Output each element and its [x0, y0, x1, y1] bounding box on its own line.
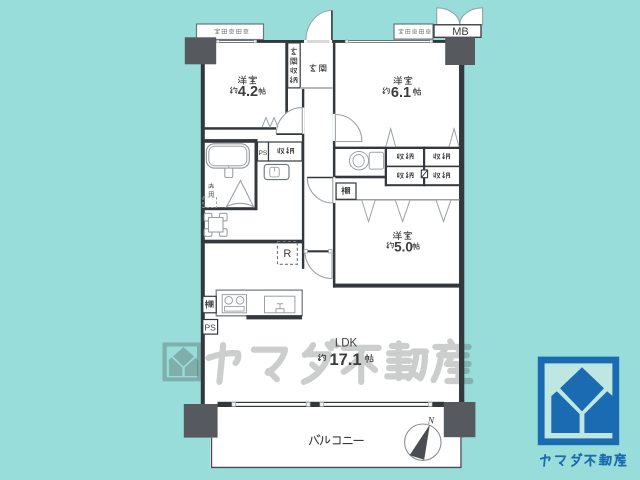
svg-text:4.2: 4.2: [238, 84, 258, 100]
svg-text:LDK: LDK: [335, 338, 358, 350]
svg-text:6.1: 6.1: [391, 85, 411, 101]
svg-text:PS: PS: [259, 150, 268, 157]
svg-text:N: N: [427, 417, 435, 427]
svg-text:R: R: [283, 248, 291, 260]
svg-text:MB: MB: [452, 26, 469, 38]
svg-text:5.0: 5.0: [394, 240, 413, 255]
svg-text:PS: PS: [205, 323, 217, 333]
svg-text:17.1: 17.1: [329, 351, 361, 369]
